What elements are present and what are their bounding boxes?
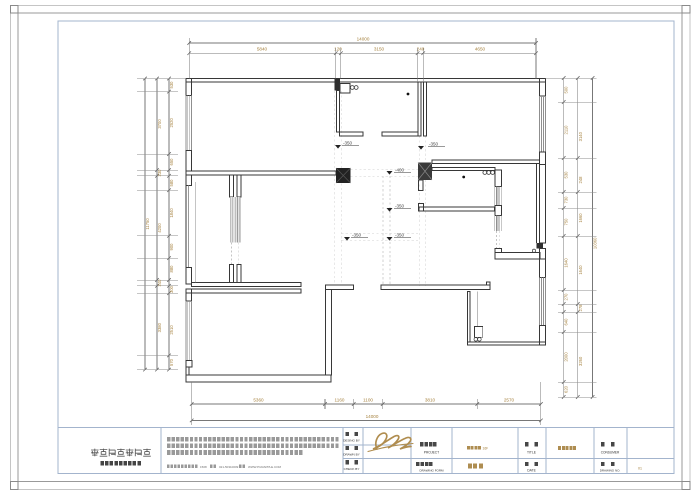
svg-text:-400: -400 (395, 168, 405, 173)
svg-text:-350: -350 (395, 233, 405, 238)
svg-text:750: 750 (564, 218, 569, 226)
svg-text:620: 620 (564, 385, 569, 393)
svg-text:230: 230 (157, 169, 162, 177)
svg-text:240: 240 (157, 279, 162, 287)
svg-text:11750: 11750 (145, 218, 150, 230)
svg-text:01: 01 (638, 467, 642, 471)
svg-text:-350: -350 (343, 141, 353, 146)
svg-text:3810: 3810 (425, 398, 436, 403)
svg-text:DESING BY: DESING BY (343, 438, 360, 442)
svg-text:2570: 2570 (504, 398, 515, 403)
svg-text:2520: 2520 (169, 117, 174, 127)
svg-text:1160: 1160 (335, 398, 345, 403)
svg-text:TITLE: TITLE (527, 451, 537, 455)
svg-text:570: 570 (169, 358, 174, 366)
svg-text:DRAWING NO.: DRAWING NO. (600, 468, 621, 472)
svg-text:2510: 2510 (169, 325, 174, 335)
svg-text:500: 500 (564, 86, 569, 94)
svg-text:DATE: DATE (527, 468, 536, 472)
svg-text:880: 880 (169, 265, 174, 273)
svg-text:CHECK BY: CHECK BY (344, 467, 360, 471)
svg-text:900: 900 (169, 243, 174, 251)
svg-text:1660: 1660 (578, 213, 583, 223)
svg-text:CONSUMER: CONSUMER (601, 451, 620, 455)
svg-text:2110: 2110 (564, 125, 569, 135)
svg-text:1508: 1508 (200, 465, 207, 469)
svg-text:650: 650 (169, 158, 174, 166)
svg-text:16F: 16F (483, 447, 489, 451)
svg-text:4650: 4650 (475, 47, 486, 52)
svg-text:1640: 1640 (564, 258, 569, 268)
svg-text:1640: 1640 (578, 265, 583, 275)
svg-text:10360: 10360 (593, 237, 598, 249)
svg-text:530: 530 (564, 171, 569, 179)
svg-text:3700: 3700 (157, 119, 162, 129)
svg-text:-350: -350 (395, 204, 405, 209)
svg-text:300: 300 (169, 285, 174, 293)
svg-text:1100: 1100 (363, 398, 373, 403)
svg-text:3140: 3140 (578, 131, 583, 141)
svg-text:021-50310009: 021-50310009 (219, 465, 239, 469)
svg-text:3380: 3380 (157, 322, 162, 332)
svg-text:5360: 5360 (253, 398, 264, 403)
svg-text:PROJECT: PROJECT (424, 451, 439, 455)
svg-text:278: 278 (578, 304, 583, 312)
svg-text:14000: 14000 (357, 37, 370, 42)
svg-text:580: 580 (169, 179, 174, 187)
svg-text:WWW.PURAPPLE.COM: WWW.PURAPPLE.COM (248, 465, 282, 469)
svg-text:1840: 1840 (169, 208, 174, 218)
svg-text:2000: 2000 (564, 352, 569, 362)
svg-text:5840: 5840 (257, 47, 268, 52)
svg-text:DRAWING FORM: DRAWING FORM (419, 468, 444, 472)
svg-text:4200: 4200 (157, 223, 162, 233)
svg-text:3260: 3260 (578, 356, 583, 366)
svg-text:-350: -350 (429, 142, 439, 147)
svg-text:DRAWN BY: DRAWN BY (343, 453, 360, 457)
svg-text:248: 248 (578, 176, 583, 184)
svg-text:640: 640 (564, 318, 569, 326)
svg-text:730: 730 (564, 196, 569, 204)
svg-text:-350: -350 (352, 233, 362, 238)
svg-text:530: 530 (169, 81, 174, 89)
svg-text:270: 270 (564, 293, 569, 301)
svg-text:3150: 3150 (374, 47, 385, 52)
svg-text:14000: 14000 (366, 414, 379, 419)
